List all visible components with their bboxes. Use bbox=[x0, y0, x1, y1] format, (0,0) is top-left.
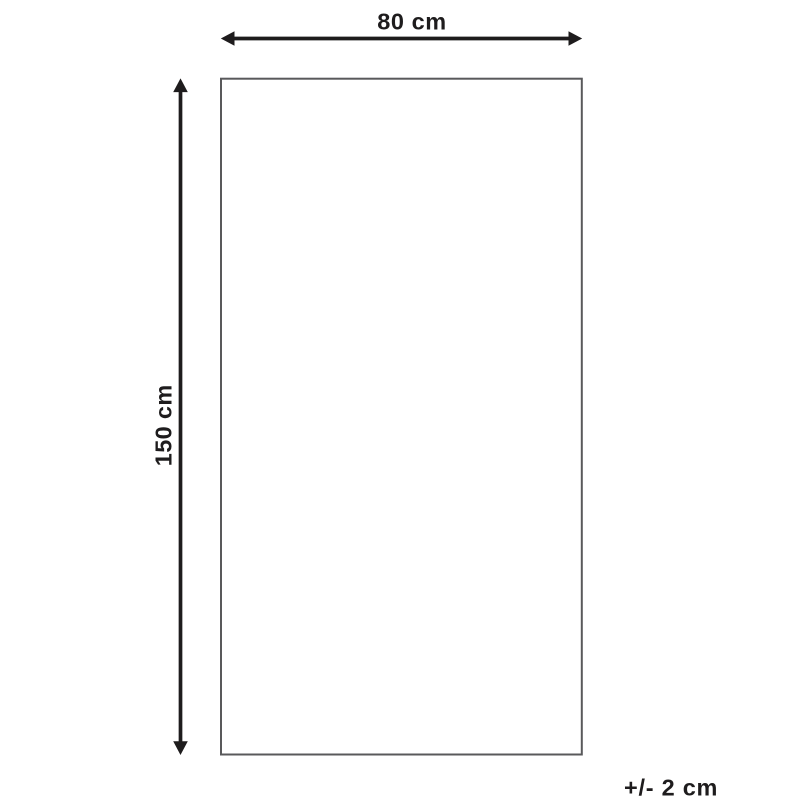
svg-text:+/- 2 cm: +/- 2 cm bbox=[624, 775, 718, 800]
svg-text:80 cm: 80 cm bbox=[377, 9, 446, 35]
svg-text:150 cm: 150 cm bbox=[151, 384, 177, 466]
